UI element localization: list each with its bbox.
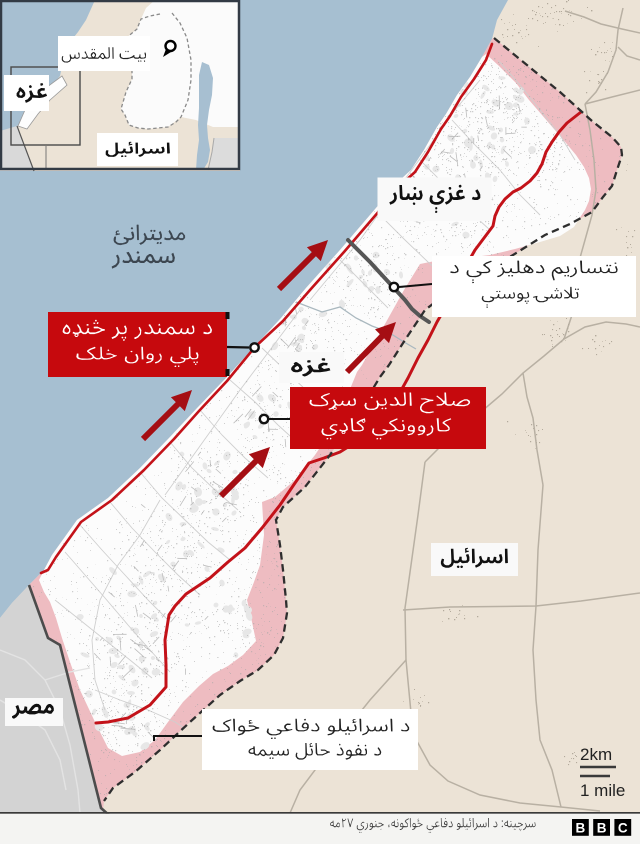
svg-text:B: B xyxy=(597,820,607,835)
svg-text:2km: 2km xyxy=(580,745,612,764)
svg-text:C: C xyxy=(618,820,628,835)
svg-text:1 mile: 1 mile xyxy=(580,781,625,800)
svg-text:B: B xyxy=(576,820,586,835)
